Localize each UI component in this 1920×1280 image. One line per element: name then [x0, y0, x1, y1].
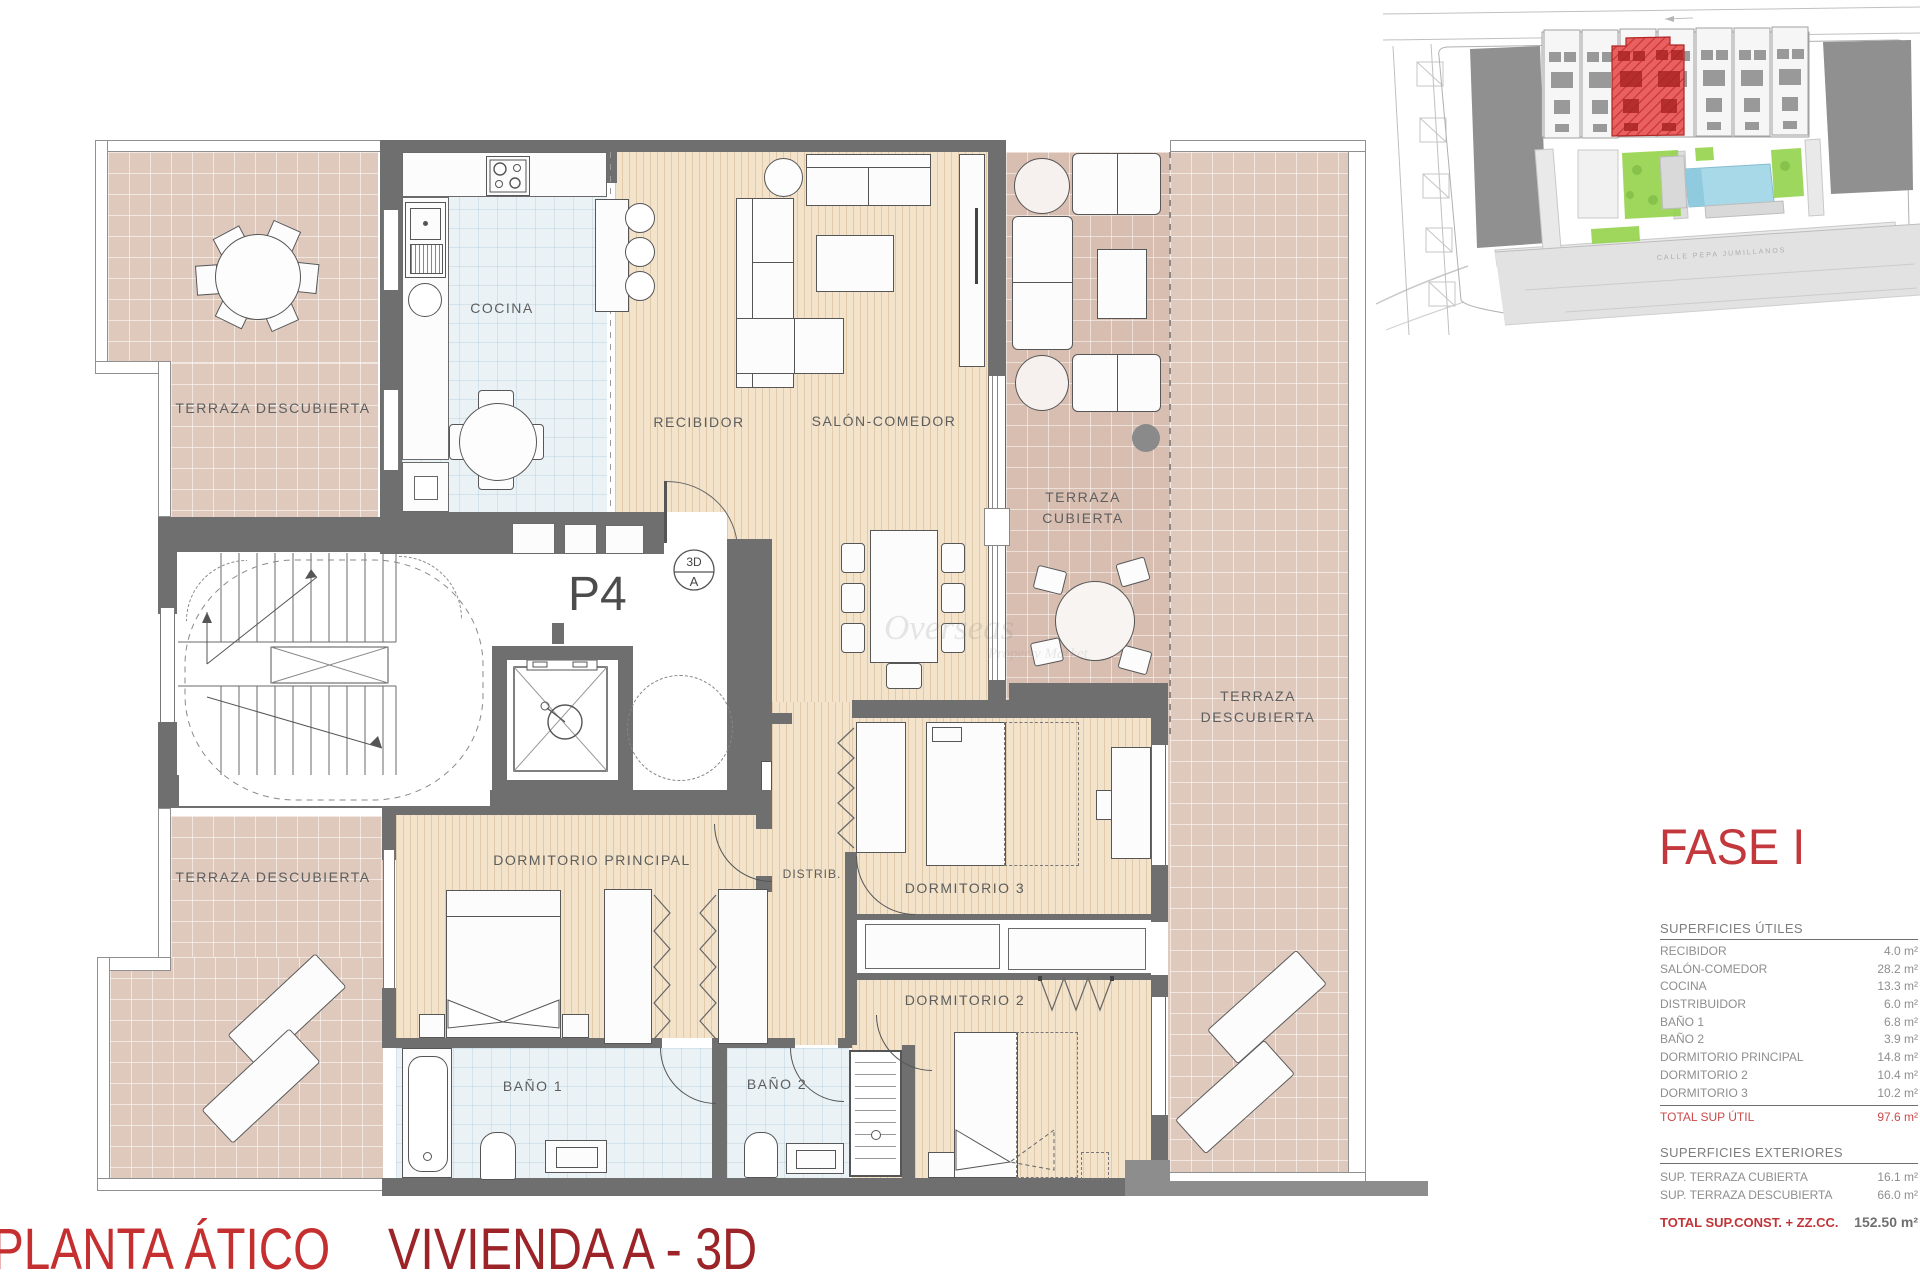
svg-text:3D: 3D: [686, 555, 702, 569]
svg-text:A: A: [690, 574, 699, 589]
